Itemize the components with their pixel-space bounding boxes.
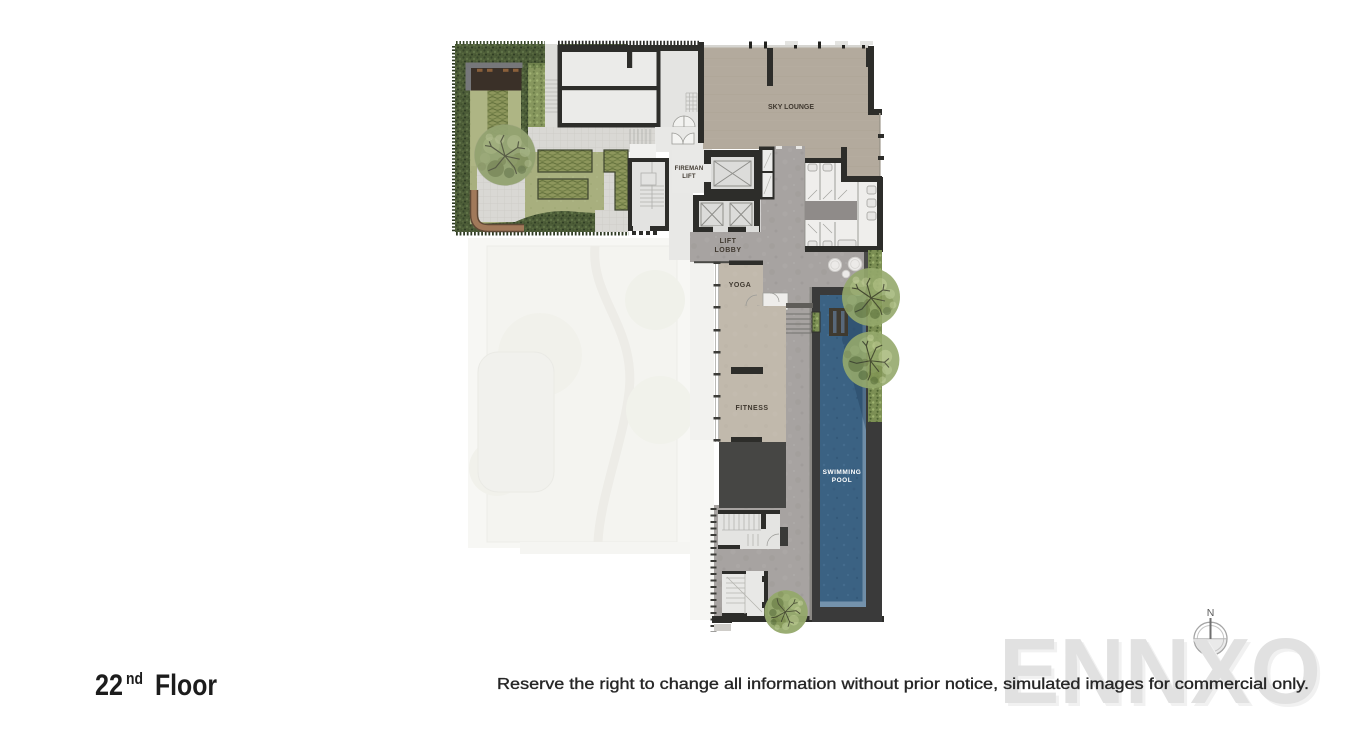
svg-text:SKY LOUNGE: SKY LOUNGE bbox=[768, 102, 814, 111]
svg-text:Floor: Floor bbox=[155, 669, 217, 702]
svg-text:nd: nd bbox=[126, 669, 143, 688]
svg-text:FIREMAN: FIREMAN bbox=[675, 166, 704, 172]
svg-text:LIFT: LIFT bbox=[720, 238, 737, 245]
svg-text:22: 22 bbox=[95, 669, 123, 702]
svg-text:SWIMMING: SWIMMING bbox=[823, 469, 862, 476]
svg-text:POOL: POOL bbox=[832, 477, 852, 484]
svg-text:ENNXO: ENNXO bbox=[999, 619, 1321, 723]
svg-text:YOGA: YOGA bbox=[729, 282, 752, 289]
svg-text:LOBBY: LOBBY bbox=[715, 247, 742, 254]
svg-text:LIFT: LIFT bbox=[682, 174, 696, 180]
svg-text:Reserve the right to change al: Reserve the right to change all informat… bbox=[497, 676, 1309, 693]
svg-text:FITNESS: FITNESS bbox=[735, 405, 768, 412]
svg-text:N: N bbox=[1207, 607, 1215, 619]
